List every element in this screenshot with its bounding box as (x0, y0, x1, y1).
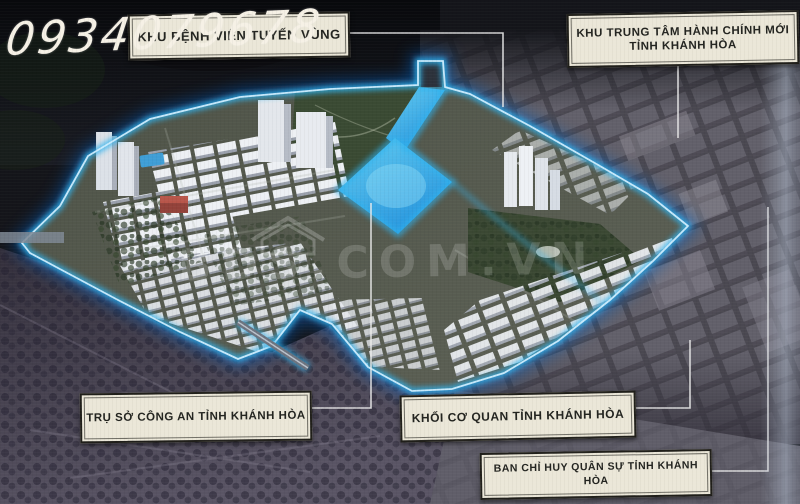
annotation-admin-center: KHU TRUNG TÂM HÀNH CHÍNH MỚI TỈNH KHÁNH … (567, 10, 800, 68)
annotation-military-command: BAN CHỈ HUY QUÂN SỰ TỈNH KHÁNH HÒA (480, 449, 713, 500)
brand-watermark: BDS.COM.VN (178, 233, 598, 291)
flag-tower (421, 62, 442, 87)
west-breakwater (0, 232, 64, 243)
masterplan-photo: KHU BỆNH VIỆN TUYẾN VÙNG KHU TRUNG TÂM H… (0, 0, 800, 504)
annotation-military-command-label: BAN CHỈ HUY QUÂN SỰ TỈNH KHÁNH HÒA (482, 459, 710, 489)
red-roof-building (160, 196, 188, 213)
brand-house-icon (248, 212, 328, 256)
annotation-admin-center-line2: TỈNH KHÁNH HÒA (629, 38, 737, 54)
edge-glare (760, 62, 800, 504)
annotation-police-hq: TRỤ SỞ CÔNG AN TỈNH KHÁNH HÒA (80, 391, 313, 444)
annotation-provincial-agencies-label: KHỐI CƠ QUAN TỈNH KHÁNH HÒA (412, 407, 625, 426)
annotation-police-hq-label: TRỤ SỞ CÔNG AN TỈNH KHÁNH HÒA (86, 408, 306, 425)
annotation-provincial-agencies: KHỐI CƠ QUAN TỈNH KHÁNH HÒA (400, 391, 637, 443)
